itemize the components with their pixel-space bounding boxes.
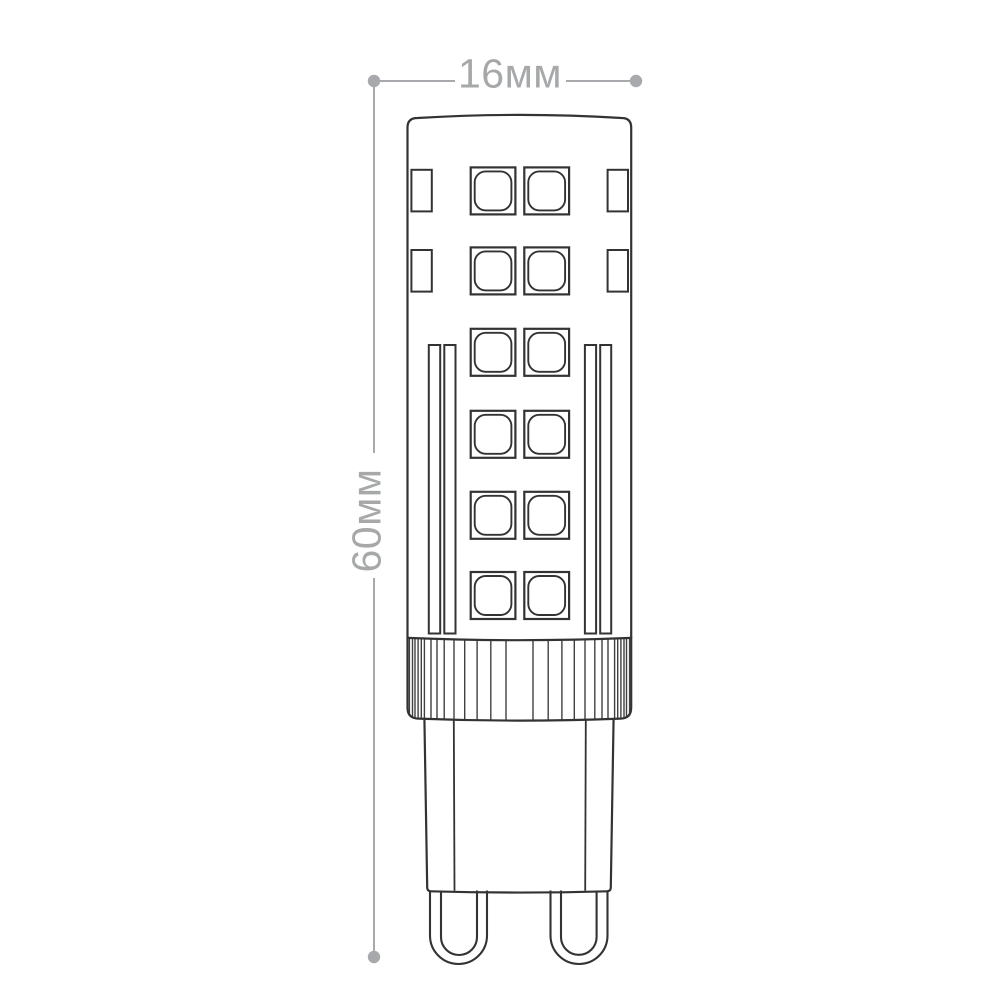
svg-text:16мм: 16мм: [458, 51, 562, 97]
svg-text:60мм: 60мм: [344, 469, 390, 573]
